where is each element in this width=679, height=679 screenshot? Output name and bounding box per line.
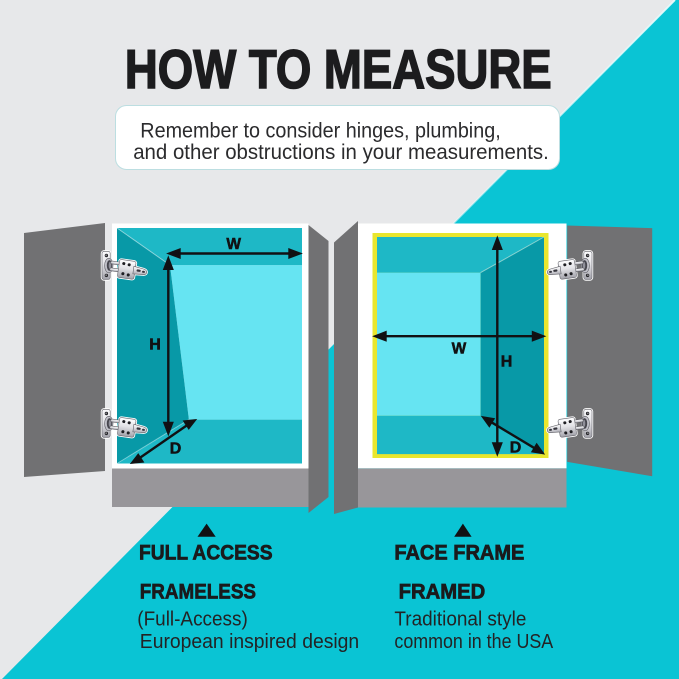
svg-text:D: D [170,441,182,458]
svg-text:H: H [149,337,161,354]
svg-text:FRAMELESS: FRAMELESS [140,581,256,604]
svg-text:Traditional style: Traditional style [394,609,526,631]
svg-text:FRAMED: FRAMED [399,581,486,604]
svg-text:(Full-Access): (Full-Access) [137,609,248,631]
svg-text:D: D [510,440,522,457]
svg-text:Remember to consider hinges, p: Remember to consider hinges, plumbing, [140,119,500,142]
svg-text:common in the USA: common in the USA [394,631,553,653]
svg-text:and other obstructions in your: and other obstructions in your measureme… [133,141,549,164]
svg-text:W: W [452,341,467,358]
svg-text:European inspired design: European inspired design [140,631,359,653]
svg-text:H: H [501,354,513,371]
svg-text:FULL ACCESS: FULL ACCESS [139,542,273,565]
svg-text:FACE FRAME: FACE FRAME [394,542,524,565]
svg-text:HOW TO MEASURE: HOW TO MEASURE [125,38,552,100]
svg-text:W: W [226,236,241,253]
